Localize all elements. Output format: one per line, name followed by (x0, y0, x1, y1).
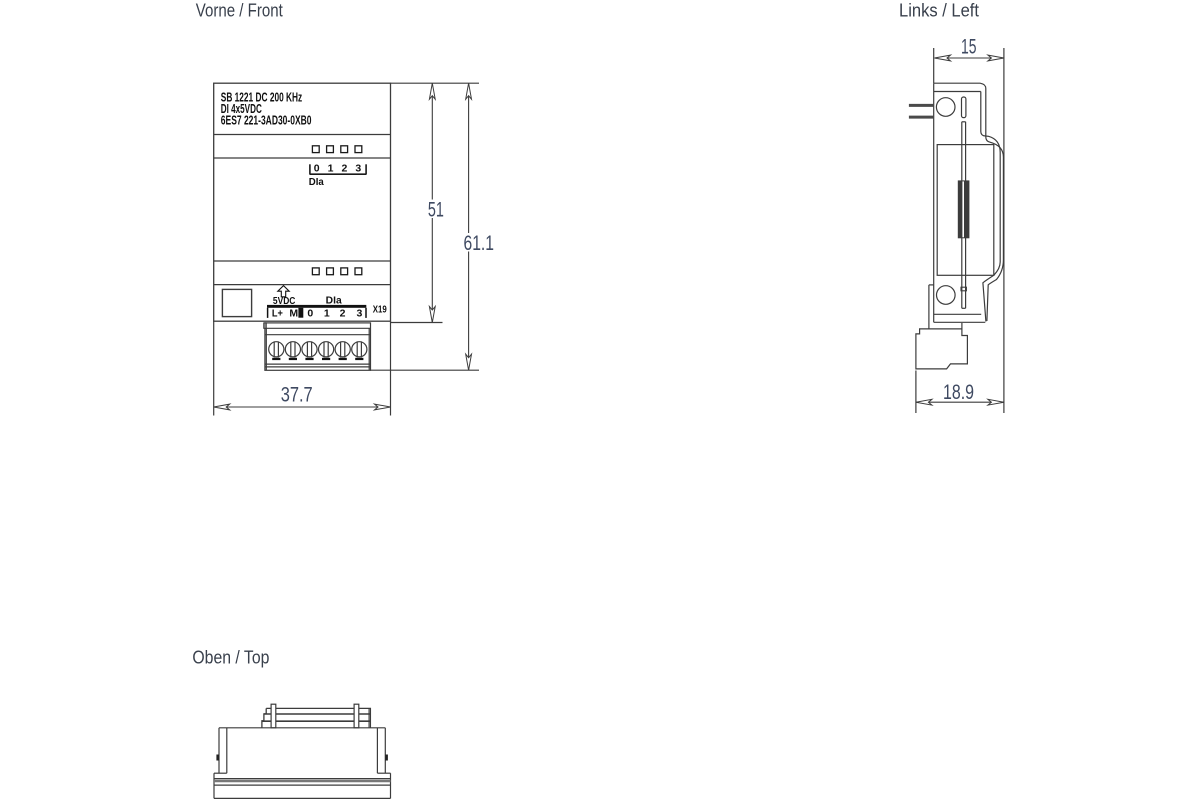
svg-text:M: M (289, 307, 298, 319)
svg-text:DIa: DIa (309, 177, 324, 188)
svg-text:18.9: 18.9 (943, 381, 974, 404)
svg-text:Links / Left: Links / Left (899, 0, 979, 20)
svg-text:61.1: 61.1 (464, 232, 495, 255)
svg-text:0: 0 (307, 307, 313, 319)
svg-text:2: 2 (342, 163, 348, 175)
svg-text:2: 2 (340, 307, 346, 319)
svg-text:Vorne / Front: Vorne / Front (196, 0, 283, 20)
svg-text:0: 0 (314, 163, 320, 175)
svg-text:3: 3 (355, 163, 361, 175)
svg-text:Oben / Top: Oben / Top (192, 648, 269, 668)
svg-text:L+: L+ (272, 307, 283, 319)
svg-text:15: 15 (961, 36, 977, 59)
svg-text:1: 1 (324, 307, 330, 319)
svg-text:6ES7 221-3AD30-0XB0: 6ES7 221-3AD30-0XB0 (221, 112, 312, 127)
svg-text:1: 1 (328, 163, 334, 175)
svg-text:51: 51 (428, 199, 444, 222)
svg-text:X19: X19 (373, 304, 387, 316)
svg-text:37.7: 37.7 (281, 384, 313, 407)
svg-text:3: 3 (357, 307, 363, 319)
